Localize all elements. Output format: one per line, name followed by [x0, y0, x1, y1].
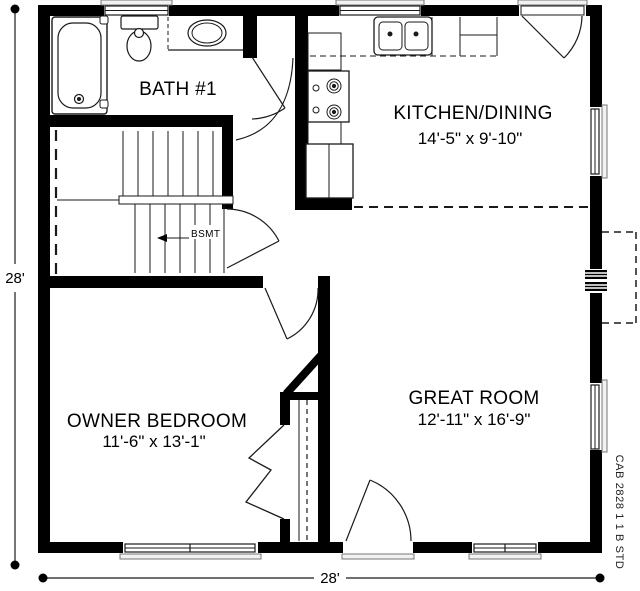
stair-treads-upper	[123, 131, 213, 197]
door-opening	[343, 541, 413, 555]
floor-plan-canvas: BSMT	[0, 0, 640, 591]
door-leaf	[227, 241, 279, 268]
floor-plan-drawing: BSMT	[0, 0, 640, 591]
optional-door-marks	[584, 269, 608, 293]
door-swing-arc	[287, 288, 318, 339]
window-sill	[101, 0, 172, 5]
window-sill	[120, 554, 261, 559]
window-sill	[336, 0, 424, 5]
staircase	[56, 130, 233, 274]
sink-drain	[388, 32, 392, 36]
vanity-side-wall	[243, 16, 257, 58]
west-cabinet-lower	[308, 122, 341, 144]
plan-code-label: CAB 2828 1 1 B STD	[613, 455, 625, 570]
rear-entry-door	[518, 0, 587, 58]
bedroom-window	[120, 541, 261, 559]
bedroom-dims: 11'-6" x 13'-1"	[102, 432, 205, 451]
door-leaf	[265, 288, 287, 339]
door-swing-arc	[564, 16, 582, 58]
kitchen-sink	[374, 17, 432, 55]
window-sill	[469, 554, 541, 559]
door-swing-arc	[370, 480, 411, 541]
burner-large-center	[332, 84, 335, 87]
dim-end-dot	[39, 574, 48, 583]
wall-left	[38, 5, 50, 553]
kitchen-right-window	[589, 105, 607, 178]
kitchen-dims: 14'-5" x 9'-10"	[418, 129, 523, 148]
toilet-hinge	[135, 29, 144, 38]
refrigerator	[306, 144, 353, 198]
bedroom-north-wall	[50, 276, 263, 288]
front-entry-door	[342, 480, 414, 559]
basement-label: BSMT	[191, 229, 220, 240]
door-swing-arc	[227, 209, 279, 241]
stair-landing-edge	[119, 196, 233, 204]
bedroom-label: OWNER BEDROOM	[67, 411, 247, 432]
basement-door	[227, 209, 279, 268]
great-room-label: GREAT ROOM	[408, 388, 539, 409]
great-room-bottom-window	[469, 541, 541, 559]
bedroom-door	[265, 288, 318, 339]
kitchen-wall-end-cap	[295, 198, 352, 210]
door-leaf	[252, 57, 285, 108]
left-dimension: 28'	[5, 5, 25, 570]
bedroom-closet	[246, 400, 307, 541]
bath-south-wall	[50, 115, 233, 127]
dim-end-dot	[11, 561, 20, 570]
great-room-right-window	[589, 380, 607, 452]
door-leaf	[522, 16, 564, 58]
burner-small	[313, 85, 319, 91]
window-sill	[602, 380, 607, 452]
bifold-doors	[246, 425, 284, 519]
burner-large-center	[332, 110, 335, 113]
tub-drain-center	[78, 98, 81, 101]
kitchen-label: KITCHEN/DINING	[393, 103, 552, 124]
left-dim-label: 28'	[5, 270, 25, 287]
window-sill	[602, 105, 607, 178]
bath-window	[101, 0, 172, 17]
closet-west-wall-lower	[280, 519, 290, 542]
west-cabinet-upper	[308, 33, 341, 70]
sink-drain	[414, 32, 418, 36]
door-stoop	[518, 0, 587, 5]
toilet-tank	[121, 16, 158, 29]
burner-small	[313, 107, 319, 113]
mark-block	[585, 282, 607, 291]
dim-end-dot	[11, 5, 20, 14]
bathtub	[52, 16, 108, 114]
vanity-sink-outer	[188, 20, 226, 46]
kitchen-top-window	[336, 0, 424, 17]
bath-vanity	[168, 17, 243, 50]
toilet	[121, 16, 158, 61]
door-threshold	[342, 554, 414, 559]
bedroom-great-room-wall	[318, 276, 330, 542]
great-room-dims: 12'-11" x 16'-9"	[418, 410, 531, 429]
mark-block	[585, 270, 607, 279]
range-stove	[308, 71, 349, 122]
door-leaf	[346, 480, 370, 541]
closet-west-wall-upper	[280, 392, 290, 425]
door-frame	[521, 6, 584, 15]
bottom-dimension: 28'	[39, 570, 605, 587]
arrowhead	[157, 234, 167, 242]
bottom-dim-label: 28'	[320, 570, 340, 587]
bath-label: BATH #1	[139, 79, 217, 100]
dim-end-dot	[596, 574, 605, 583]
tub-deck-corner	[100, 16, 108, 24]
tub-deck-corner	[100, 100, 108, 108]
basement-callout: BSMT	[157, 225, 223, 242]
hall-door-swing-arc	[236, 58, 293, 140]
